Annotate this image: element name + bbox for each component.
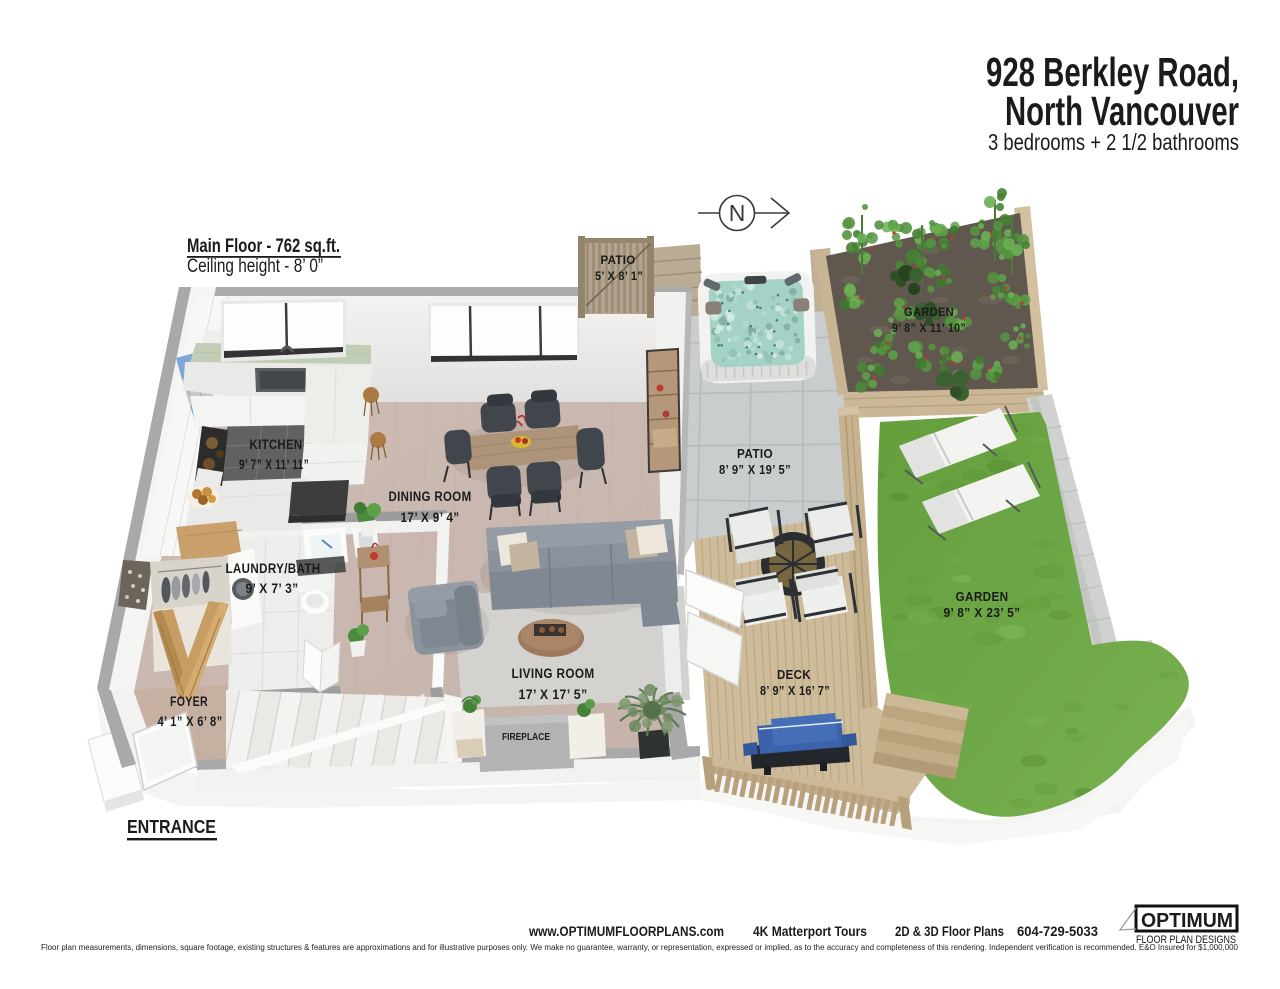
- svg-text:FOYER: FOYER: [170, 694, 208, 709]
- svg-text:4’ 1” X 6’ 8”: 4’ 1” X 6’ 8”: [158, 714, 223, 729]
- svg-text:9’ 7” X 11’ 11”: 9’ 7” X 11’ 11”: [239, 457, 309, 472]
- svg-text:North Vancouver: North Vancouver: [1005, 88, 1239, 134]
- svg-text:Main Floor - 762 sq.ft.: Main Floor - 762 sq.ft.: [187, 236, 340, 257]
- svg-text:604-729-5033: 604-729-5033: [1017, 924, 1098, 939]
- svg-text:N: N: [729, 200, 746, 226]
- svg-text:17’ X 9’ 4”: 17’ X 9’ 4”: [401, 510, 460, 525]
- svg-text:17’ X 17’ 5”: 17’ X 17’ 5”: [519, 687, 588, 702]
- svg-text:PATIO: PATIO: [601, 255, 636, 267]
- svg-text:DECK: DECK: [777, 667, 811, 682]
- svg-text:2D & 3D Floor Plans: 2D & 3D Floor Plans: [895, 924, 1004, 939]
- svg-text:OPTIMUM: OPTIMUM: [1141, 910, 1233, 932]
- svg-text:GARDEN: GARDEN: [956, 589, 1009, 604]
- svg-text:8’ 9” X 16’ 7”: 8’ 9” X 16’ 7”: [760, 683, 830, 698]
- svg-text:4K Matterport Tours: 4K Matterport Tours: [753, 924, 867, 939]
- svg-text:FIREPLACE: FIREPLACE: [502, 731, 550, 743]
- svg-text:9’ X 7’ 3”: 9’ X 7’ 3”: [246, 581, 299, 596]
- svg-text:Floor plan measurements, dimen: Floor plan measurements, dimensions, squ…: [41, 942, 1238, 952]
- svg-text:DINING ROOM: DINING ROOM: [389, 489, 472, 504]
- svg-text:5’ X 8’ 1”: 5’ X 8’ 1”: [595, 271, 643, 283]
- svg-text:9’ 8” X 23’ 5”: 9’ 8” X 23’ 5”: [944, 605, 1021, 620]
- svg-text:LAUNDRY/BATH: LAUNDRY/BATH: [226, 561, 321, 576]
- svg-text:8’ 9” X 19’ 5”: 8’ 9” X 19’ 5”: [719, 462, 791, 477]
- svg-text:9’ 8” X 11’ 10”: 9’ 8” X 11’ 10”: [892, 323, 966, 335]
- svg-text:LIVING ROOM: LIVING ROOM: [512, 666, 595, 681]
- svg-text:PATIO: PATIO: [737, 446, 773, 461]
- svg-text:ENTRANCE: ENTRANCE: [127, 817, 216, 837]
- svg-text:3 bedrooms + 2 1/2 bathrooms: 3 bedrooms + 2 1/2 bathrooms: [988, 129, 1239, 155]
- svg-text:FLOOR PLAN DESIGNS: FLOOR PLAN DESIGNS: [1136, 934, 1236, 946]
- svg-text:KITCHEN: KITCHEN: [250, 437, 303, 452]
- svg-text:Ceiling height - 8’ 0”: Ceiling height - 8’ 0”: [187, 256, 323, 277]
- svg-text:GARDEN: GARDEN: [904, 307, 954, 319]
- svg-text:www.OPTIMUMFLOORPLANS.com: www.OPTIMUMFLOORPLANS.com: [528, 924, 724, 939]
